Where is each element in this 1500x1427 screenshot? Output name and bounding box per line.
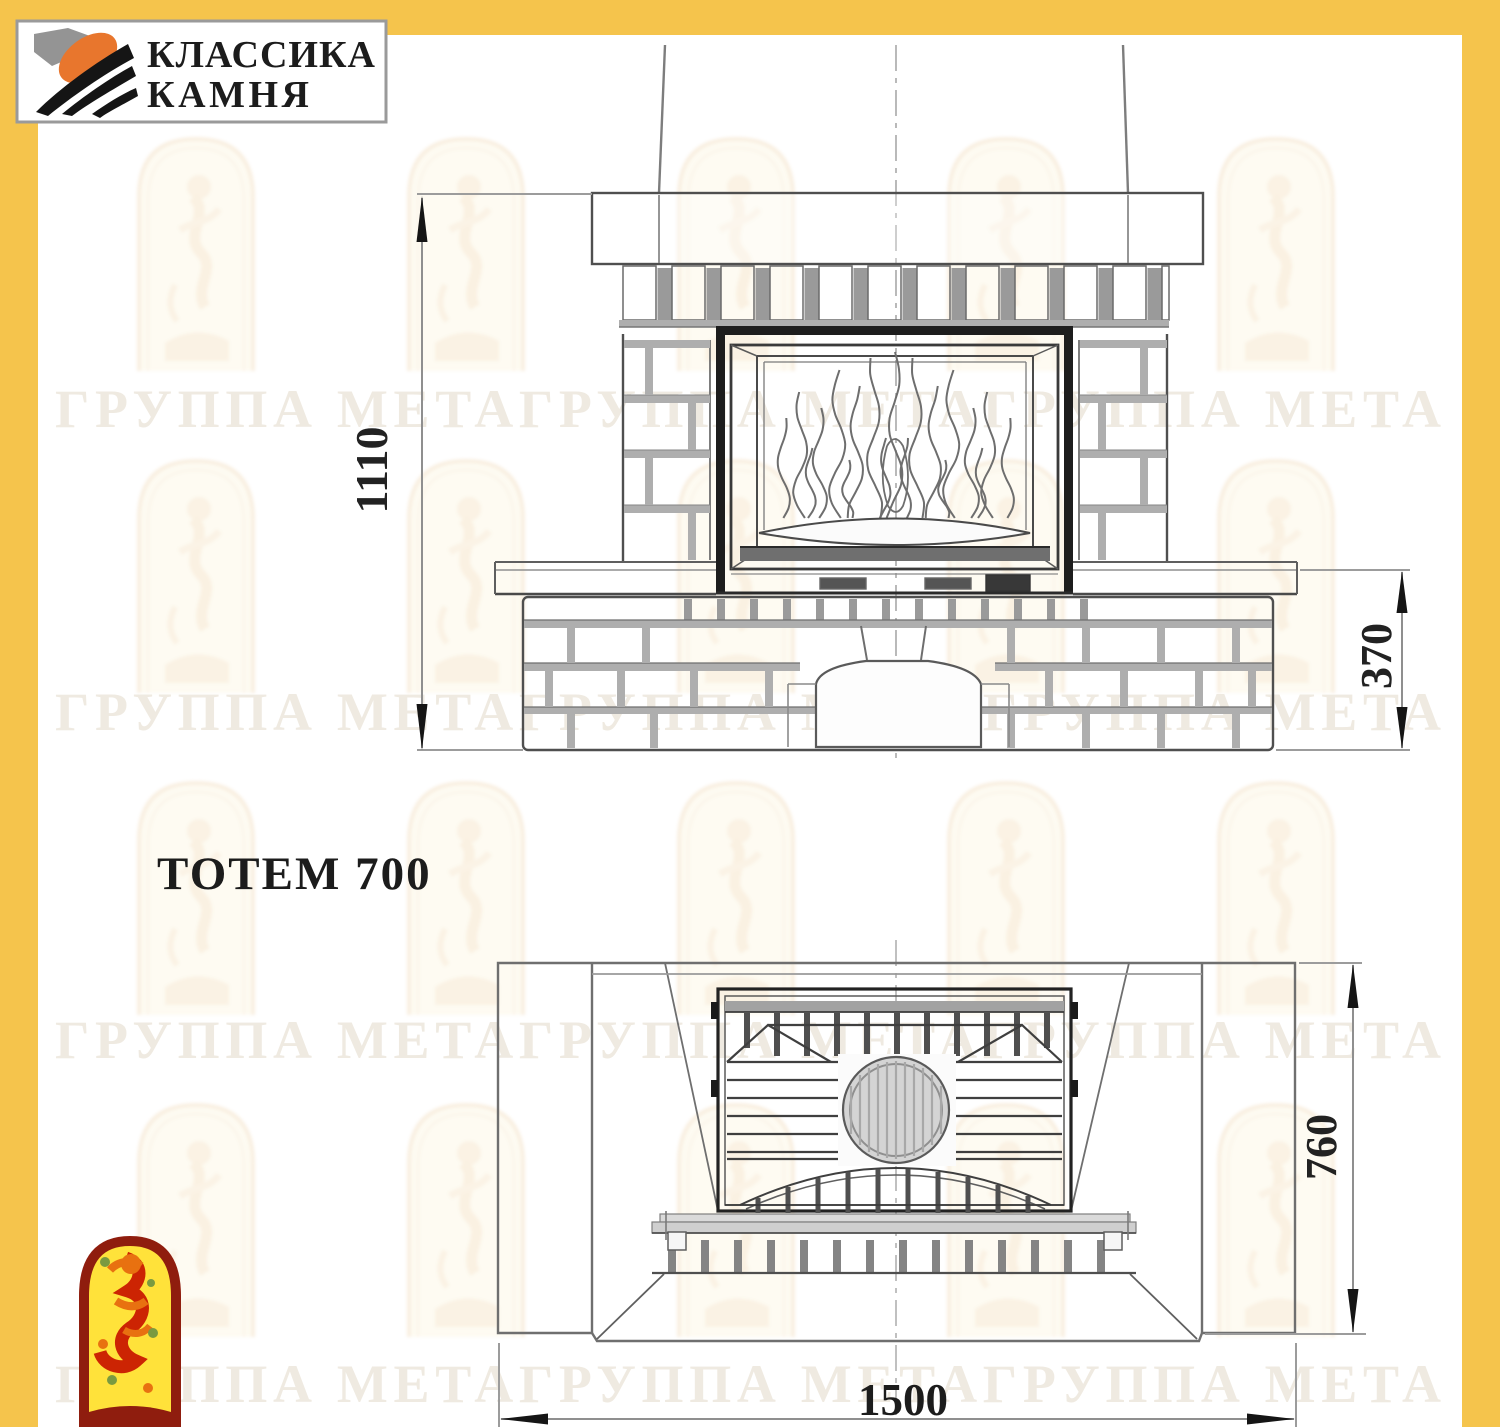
svg-text:ГРУППА МЕТАГРУППА МЕТАГРУППА М: ГРУППА МЕТАГРУППА МЕТАГРУППА МЕТА — [55, 379, 1445, 439]
svg-text:ГРУППА МЕТАГРУППА МЕТАГРУППА М: ГРУППА МЕТАГРУППА МЕТАГРУППА МЕТА — [55, 1354, 1445, 1414]
svg-text:ТОТЕМ 700: ТОТЕМ 700 — [157, 848, 432, 900]
svg-text:1500: 1500 — [858, 1375, 948, 1425]
svg-text:КЛАССИКА: КЛАССИКА — [147, 34, 376, 76]
svg-text:370: 370 — [1352, 623, 1401, 689]
svg-text:760: 760 — [1297, 1114, 1346, 1180]
svg-text:1110: 1110 — [346, 427, 397, 514]
svg-text:КАМНЯ: КАМНЯ — [147, 74, 309, 116]
